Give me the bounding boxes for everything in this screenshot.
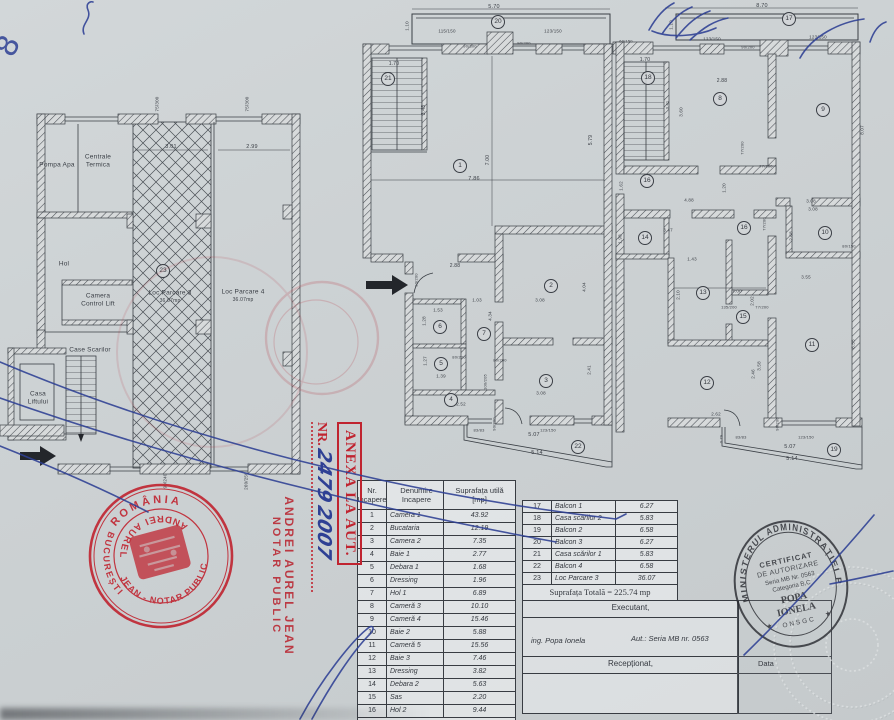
header-denumire-line2: Incapere <box>402 495 431 504</box>
room-label: 36.07mp <box>233 297 254 303</box>
executant-authorization: Aut.: Seria MB nr. 0563 <box>631 634 709 643</box>
table-cell: 21 <box>523 549 551 560</box>
dim-label: 8.07 <box>860 125 865 135</box>
dim-label: 7.86 <box>468 176 480 182</box>
table-cell: Bucataria <box>386 523 443 535</box>
dim-label: 3.08 <box>808 207 818 212</box>
table-row: 9Cameră 415.46 <box>358 614 515 627</box>
room-number: 22 <box>571 440 585 454</box>
dim-label: 7.00 <box>732 289 742 294</box>
room-number: 19 <box>827 443 841 457</box>
annex-table-body: 17Balcon 16.2718Casa scărilor 25.8319Bal… <box>523 501 677 585</box>
table-row: 5Debara 11.68 <box>358 562 515 575</box>
table-cell: 5.83 <box>615 513 677 524</box>
table-cell: Debara 2 <box>386 679 443 691</box>
header-nr-line1: Nr. <box>367 486 377 495</box>
dim-label: 4.34 <box>488 311 493 321</box>
dim-label: 80/200 <box>452 355 465 360</box>
room-number: 1 <box>453 159 467 173</box>
dim-label: 90/300 <box>463 44 476 49</box>
table-cell: Dressing <box>386 575 443 587</box>
dim-label: 83/83 <box>473 428 484 433</box>
dim-label: 1.10 <box>669 20 674 30</box>
table-cell: Casa scărilor 1 <box>551 549 615 560</box>
table-cell: 10 <box>358 627 386 639</box>
dim-label: 1.70 <box>389 61 400 67</box>
table-cell: 11 <box>358 640 386 652</box>
dim-label: 3.58 <box>757 361 762 371</box>
dim-label: 3.60 <box>679 107 684 117</box>
dim-label: 77/200 <box>740 141 745 154</box>
dim-label: 1.03 <box>472 298 482 303</box>
dim-label: 90/200 <box>414 273 419 286</box>
table-cell: Hol 1 <box>386 588 443 600</box>
notary-name-stamp: ANDREI AUREL JEAN NOTAR PUBLIC <box>262 492 296 660</box>
date-box: Data <box>737 600 832 714</box>
annex-area-table: 17Balcon 16.2718Casa scărilor 25.8319Bal… <box>522 500 678 601</box>
table-cell: 23 <box>523 573 551 584</box>
room-number: 4 <box>444 393 458 407</box>
received-title: Recepționat, <box>523 657 738 674</box>
dim-label: 77/200 <box>759 164 772 169</box>
room-label: Loc Parcare 4 <box>221 289 264 296</box>
table-row: 1Camera 143.92 <box>358 510 515 523</box>
table-cell: Dressing <box>386 666 443 678</box>
dim-label: 1.62 <box>619 181 624 191</box>
table-cell: Cameră 5 <box>386 640 443 652</box>
dim-label: 8.70 <box>756 3 768 9</box>
room-number: 13 <box>696 286 710 300</box>
table-cell: 2.77 <box>443 549 515 561</box>
table-cell: 3.82 <box>443 666 515 678</box>
room-label: Centrale <box>85 154 111 161</box>
table-cell: 2.20 <box>443 692 515 704</box>
room-number: 20 <box>491 15 505 29</box>
table-row: 11Cameră 515.56 <box>358 640 515 653</box>
anexa-title: ANEXA LA AUT. <box>337 422 362 565</box>
table-row: 6Dressing1.96 <box>358 575 515 588</box>
table-row: 2Bucataria12.19 <box>358 523 515 536</box>
table-cell: 12.19 <box>443 523 515 535</box>
dim-label: 83/83 <box>735 435 746 440</box>
dim-label: 2.88 <box>450 263 461 269</box>
header-denumire-line1: Denumire <box>400 486 433 495</box>
table-cell: 1.68 <box>443 562 515 574</box>
room-number: 16 <box>640 174 654 188</box>
table-cell: 7 <box>358 588 386 600</box>
room-number: 15 <box>736 310 750 324</box>
dim-label: 60/150 <box>619 39 632 44</box>
header-suprafata-line1: Suprafața utilă <box>455 486 503 495</box>
dim-label: 90/200 <box>741 45 754 50</box>
table-cell: 13 <box>358 666 386 678</box>
room-number: 11 <box>805 338 819 352</box>
dim-label: 1.20 <box>722 183 727 193</box>
dim-label: 0.41 <box>665 101 670 110</box>
dim-label: 77/200 <box>755 305 768 310</box>
dim-label: 123/150 <box>809 35 827 40</box>
total-area: Suprafața Totală = 225.74 mp <box>523 585 677 600</box>
dim-label: 77/200 <box>762 217 767 230</box>
room-label: Loc Parcare 3 <box>148 290 191 297</box>
dim-label: 1.28 <box>422 316 427 326</box>
dim-label: 2.41 <box>587 365 592 375</box>
dim-label: 100/205 <box>483 374 488 390</box>
table-cell: 6.27 <box>615 501 677 512</box>
dim-label: 3.43 <box>421 105 427 116</box>
room-number: 12 <box>700 376 714 390</box>
room-number: 18 <box>641 71 655 85</box>
table-cell: 5.83 <box>615 549 677 560</box>
notary-title: NOTAR PUBLIC <box>270 492 282 660</box>
table-row: 4Baie 12.77 <box>358 549 515 562</box>
table-cell: 15 <box>358 692 386 704</box>
table-cell: Debara 1 <box>386 562 443 574</box>
table-cell: Balcon 1 <box>551 501 615 512</box>
header-denumire: Denumire Incapere <box>386 481 443 509</box>
table-cell: 5.63 <box>443 679 515 691</box>
dim-label: 5.79 <box>588 135 594 146</box>
table-cell: Loc Parcare 3 <box>551 573 615 584</box>
dim-label: 1.27 <box>423 356 428 366</box>
room-number: 3 <box>539 374 553 388</box>
executant-name: ing. Popa Ionela <box>531 636 585 645</box>
dim-label: 3.55 <box>801 275 811 280</box>
dim-label: 3.08 <box>536 391 546 396</box>
room-number: 7 <box>477 327 491 341</box>
room-number: 14 <box>638 231 652 245</box>
dim-label: 135/200 <box>721 305 737 310</box>
dim-label: 2.68 <box>789 231 794 241</box>
dim-label: 3.47 <box>663 228 673 233</box>
table-cell: 36.07 <box>615 573 677 584</box>
anexa-stamp: ANEXA LA AUT. NR. 2479 2007 <box>300 422 362 607</box>
table-cell: 5.88 <box>443 627 515 639</box>
table-row: 7Hol 16.89 <box>358 588 515 601</box>
dim-label: 3.01 <box>165 144 177 150</box>
dim-label: 2.88 <box>717 78 728 84</box>
room-label: Hol <box>59 261 69 268</box>
executant-box: Executant, ing. Popa Ionela Aut.: Seria … <box>522 600 739 714</box>
room-number: 10 <box>818 226 832 240</box>
dim-label: 2.46 <box>751 369 756 379</box>
table-cell: 43.92 <box>443 510 515 522</box>
table-row: 18Casa scărilor 25.83 <box>523 513 677 525</box>
table-cell: 6.89 <box>443 588 515 600</box>
dim-label: 123/150 <box>540 428 556 433</box>
table-cell: 6.27 <box>615 537 677 548</box>
table-cell: Baie 2 <box>386 627 443 639</box>
anexa-nr-label: NR. <box>314 422 329 446</box>
notary-name: ANDREI AUREL JEAN <box>282 492 296 660</box>
dim-label: 90/200 <box>775 417 780 430</box>
table-cell: Cameră 3 <box>386 601 443 613</box>
header-suprafata-line2: [mp] <box>472 495 487 504</box>
table-cell: 6 <box>358 575 386 587</box>
scan-shadow <box>0 708 430 720</box>
room-label: Case Scarilor <box>69 347 111 354</box>
dim-label: 123/150 <box>703 37 721 42</box>
table-row: 13Dressing3.82 <box>358 666 515 679</box>
table-cell: 18 <box>523 513 551 524</box>
table-cell: Sas <box>386 692 443 704</box>
table-cell: Casa scărilor 2 <box>551 513 615 524</box>
table-cell: 15.56 <box>443 640 515 652</box>
table-cell: Camera 2 <box>386 536 443 548</box>
table-cell: 3 <box>358 536 386 548</box>
room-number: 21 <box>381 72 395 86</box>
table-cell: 8 <box>358 601 386 613</box>
executant-title: Executant, <box>523 601 738 618</box>
dim-label: 2.99 <box>246 144 258 150</box>
table-cell: Balcon 2 <box>551 525 615 536</box>
table-cell: 20 <box>523 537 551 548</box>
anexa-number-line: NR. 2479 2007 <box>311 422 335 592</box>
room-label: Control Lift <box>81 301 115 308</box>
dim-label: 90/200 <box>492 417 497 430</box>
dim-label: 5.70 <box>488 4 500 10</box>
table-cell: 19 <box>523 525 551 536</box>
date-label: Data <box>758 659 774 668</box>
dim-label: 115/150 <box>438 29 455 34</box>
table-cell: Camera 1 <box>386 510 443 522</box>
header-nr: Nr. Incapere <box>358 481 386 509</box>
table-row: 3Camera 27.35 <box>358 536 515 549</box>
dim-label: 75/300 <box>245 97 250 112</box>
table-cell: 15.46 <box>443 614 515 626</box>
table-cell: 6.58 <box>615 525 677 536</box>
dim-label: 0.79 <box>719 435 724 444</box>
dim-label: 90/240 <box>163 474 168 489</box>
table-cell: Balcon 4 <box>551 561 615 572</box>
room-number: 2 <box>544 279 558 293</box>
table-cell: 7.35 <box>443 536 515 548</box>
table-cell: 14 <box>358 679 386 691</box>
dim-label: 4.04 <box>582 282 587 292</box>
table-cell: 17 <box>523 501 551 512</box>
table-cell: Cameră 4 <box>386 614 443 626</box>
room-label: Pompa Apa <box>39 162 74 169</box>
table-cell: 9 <box>358 614 386 626</box>
scanned-floor-plan-sheet: Pompa ApaCentraleTermicaHolCameraControl… <box>0 0 894 720</box>
table-cell: 10.10 <box>443 601 515 613</box>
table-cell: Baie 3 <box>386 653 443 665</box>
header-suprafata: Suprafața utilă [mp] <box>443 481 515 509</box>
dim-label: 1.53 <box>433 308 443 313</box>
room-label: Casa <box>30 391 46 398</box>
table-cell: 12 <box>358 653 386 665</box>
table-cell: 2 <box>358 523 386 535</box>
dim-label: 1.39 <box>436 374 446 379</box>
dim-label: 2.10 <box>676 290 681 300</box>
table-cell: 1.96 <box>443 575 515 587</box>
dim-label: 80/200 <box>493 358 506 363</box>
dim-label: 1.70 <box>640 57 651 63</box>
dim-label: 75/300 <box>155 97 160 112</box>
dim-label: 4.88 <box>684 198 694 203</box>
date-box-line <box>738 673 831 674</box>
table-row: 8Cameră 310.10 <box>358 601 515 614</box>
table-cell: Balcon 3 <box>551 537 615 548</box>
anexa-number-handwritten: 2479 <box>313 446 335 504</box>
dim-label: 1.98 <box>618 234 623 244</box>
rooms-area-table: Nr. Incapere Denumire Incapere Suprafața… <box>357 480 516 720</box>
dim-label: 5.14 <box>786 456 798 462</box>
table-row: 20Balcon 36.27 <box>523 537 677 549</box>
executant-row: ing. Popa Ionela Aut.: Seria MB nr. 0563 <box>523 618 738 657</box>
dim-label: 6.55 <box>851 339 856 349</box>
table-row: 23Loc Parcare 336.07 <box>523 573 677 585</box>
table-row: 17Balcon 16.27 <box>523 501 677 513</box>
table-row: 10Baie 25.88 <box>358 627 515 640</box>
room-number: 9 <box>816 103 830 117</box>
table-row: 12Baie 37.46 <box>358 653 515 666</box>
table-cell: 4 <box>358 549 386 561</box>
table-cell: Baie 1 <box>386 549 443 561</box>
table-cell: 7.46 <box>443 653 515 665</box>
table-cell: 9.44 <box>443 705 515 717</box>
table-cell: 5 <box>358 562 386 574</box>
table-cell: 1 <box>358 510 386 522</box>
room-number: 6 <box>433 320 447 334</box>
table-cell: 6.58 <box>615 561 677 572</box>
dim-label: 123/150 <box>544 29 562 34</box>
room-number: 5 <box>434 357 448 371</box>
dim-label: 1.43 <box>687 257 697 262</box>
room-label: Camera <box>86 293 110 300</box>
dim-label: 5.07 <box>528 432 540 438</box>
dim-label: 7.00 <box>485 155 491 166</box>
room-number: 8 <box>713 92 727 106</box>
room-label: 36.07mp <box>160 298 181 304</box>
table-row: 19Balcon 26.58 <box>523 525 677 537</box>
table-row: 21Casa scărilor 15.83 <box>523 549 677 561</box>
dim-label: 3.08 <box>535 298 545 303</box>
anexa-year-handwritten: 2007 <box>313 503 335 561</box>
date-box-line <box>738 656 831 657</box>
table-row: 14Debara 25.63 <box>358 679 515 692</box>
dim-label: 80/150 <box>842 244 855 249</box>
dim-label: 3.08 <box>806 199 816 204</box>
table-cell: 22 <box>523 561 551 572</box>
room-label: Liftului <box>28 399 48 406</box>
rooms-table-body: 1Camera 143.922Bucataria12.193Camera 27.… <box>358 510 515 718</box>
table-row: 15Sas2.20 <box>358 692 515 705</box>
table-row: 22Balcon 46.58 <box>523 561 677 573</box>
room-label: Termica <box>86 162 110 169</box>
dim-label: 90/200 <box>517 41 530 46</box>
room-number: 23 <box>156 264 170 278</box>
dim-label: 5.14 <box>531 450 543 456</box>
dim-label: 2.02 <box>750 296 755 306</box>
dim-label: 2.62 <box>711 412 721 417</box>
dim-label: 2.52 <box>456 402 466 407</box>
dim-label: 5.07 <box>784 444 796 450</box>
rooms-table-header: Nr. Incapere Denumire Incapere Suprafața… <box>358 481 515 510</box>
dim-label: 260/250 <box>244 472 249 490</box>
dim-label: 123/150 <box>798 435 814 440</box>
room-number: 17 <box>782 12 796 26</box>
room-number: 16 <box>737 221 751 235</box>
dim-label: 1.10 <box>405 21 410 31</box>
